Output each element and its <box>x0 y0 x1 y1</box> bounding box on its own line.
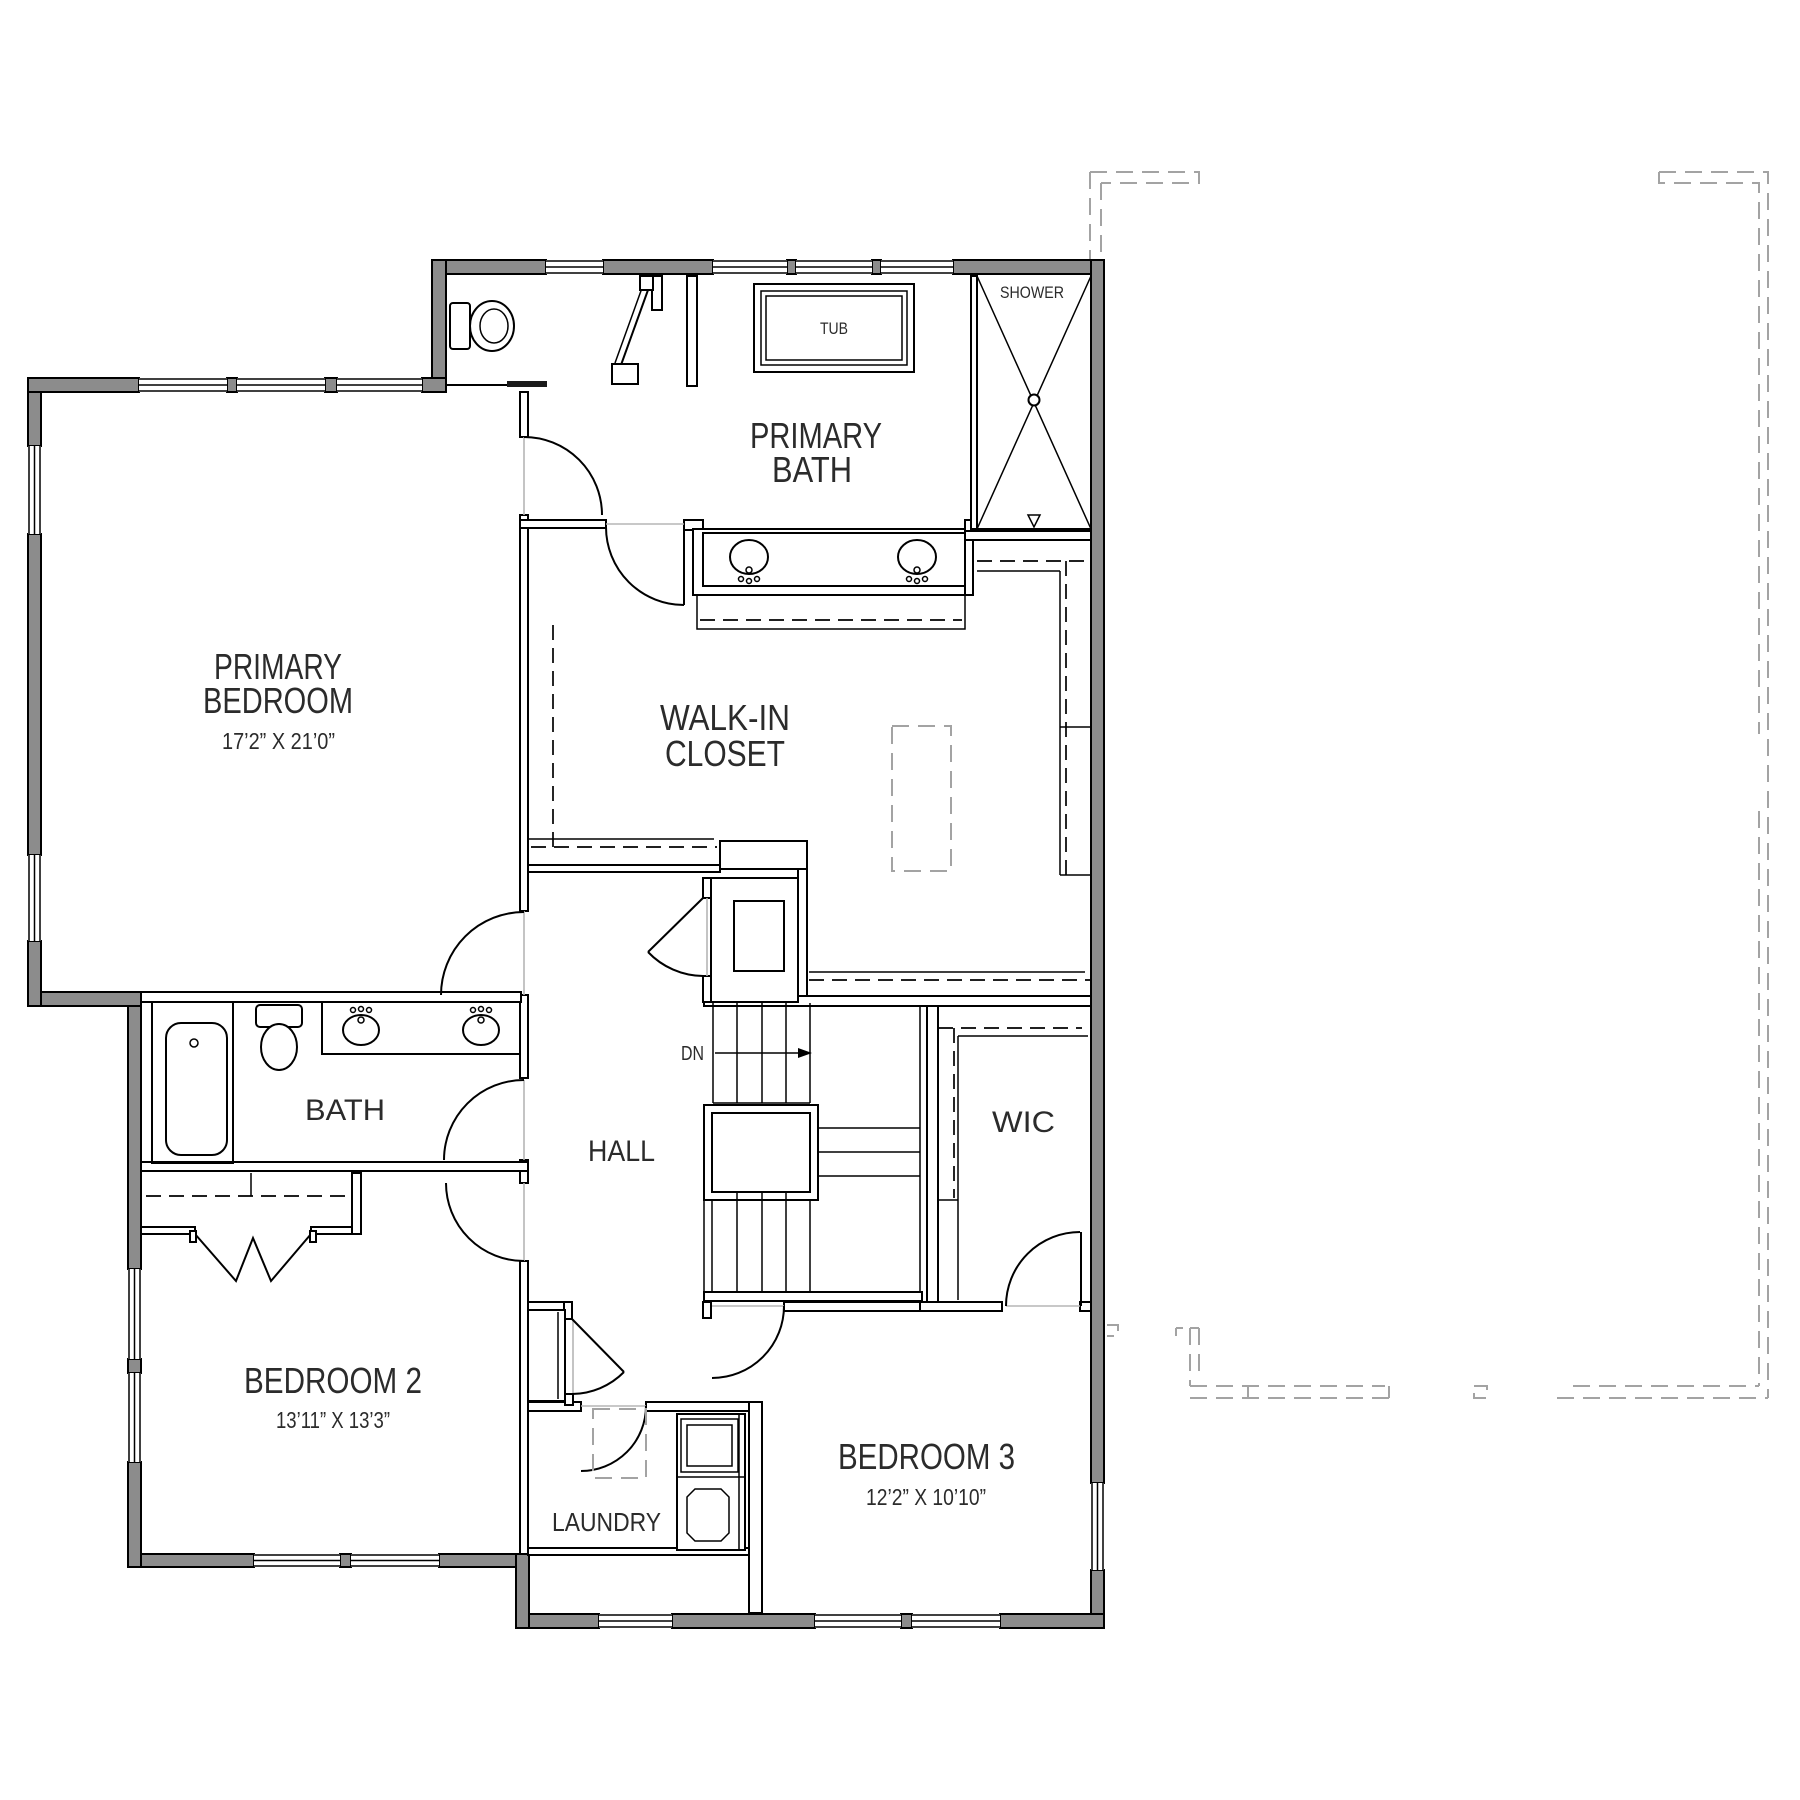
svg-text:WALK-IN: WALK-IN <box>660 697 790 738</box>
svg-text:CLOSET: CLOSET <box>665 733 785 774</box>
svg-text:HALL: HALL <box>588 1135 655 1168</box>
svg-text:BEDROOM 3: BEDROOM 3 <box>838 1436 1015 1477</box>
svg-text:BEDROOM 2: BEDROOM 2 <box>244 1360 422 1401</box>
svg-text:TUB: TUB <box>820 319 848 338</box>
svg-text:BEDROOM: BEDROOM <box>203 680 353 721</box>
svg-text:LAUNDRY: LAUNDRY <box>552 1507 661 1537</box>
svg-text:BATH: BATH <box>772 449 852 490</box>
svg-text:17’2” X 21’0”: 17’2” X 21’0” <box>222 728 335 754</box>
svg-text:WIC: WIC <box>992 1106 1055 1139</box>
svg-text:SHOWER: SHOWER <box>1000 283 1064 302</box>
svg-text:12’2” X 10’10”: 12’2” X 10’10” <box>866 1484 986 1510</box>
svg-text:13’11” X 13’3”: 13’11” X 13’3” <box>276 1407 390 1433</box>
svg-text:BATH: BATH <box>305 1094 385 1127</box>
svg-text:DN: DN <box>681 1043 704 1065</box>
